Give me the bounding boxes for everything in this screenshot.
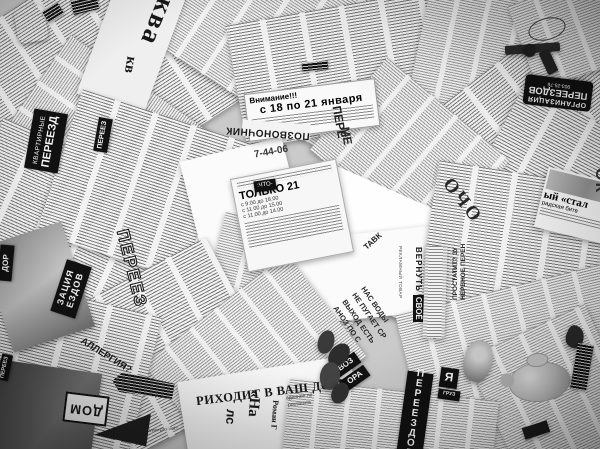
headline-pozvonochnik: ПОЗВОНОЧНИК [242,120,311,141]
vertical-ad-block: ПРОСТАТИТ? ЗУ НЕРВНОЕ ПЕРЕН [452,242,470,300]
ad-vertical-text: ПЕРЕЕЗДОВ [403,368,426,449]
fragment-me: МЕ [337,126,355,152]
vertical-column-label: РЕКЛАМНЫЙ ТОВАР [394,246,402,306]
revolver-cylinder [523,44,536,57]
vertical-ad-line: НЕРВНОЕ ПЕРЕН [460,242,468,300]
teapot-sketch [499,344,576,407]
vertical-ls: лс [220,408,238,439]
coupon-clipping: ТОЛЬКО 21 с 9.00 до 18.00 с 11.00 до 15.… [230,159,354,273]
column-word: ВЕРНУТЬ [415,247,424,292]
ad-phone: 903-25-76 [547,80,570,88]
fragment-ok: ОК [588,168,600,208]
ad-dom-box: ДОМ [62,391,109,426]
vertical-headline-na: «На [240,389,261,436]
newspaper-collage-photo: осква кв КВАРТИРНЫЕ ПЕРЕЕЗД ПЕРЕЕЗ ПЕРЕЕ… [0,0,600,449]
vertical-ad-line: ПРОСТАТИТ? ЗУ [452,242,460,300]
ad-ya-box: Я [439,367,460,389]
newspaper-texture-clipping [422,246,447,339]
